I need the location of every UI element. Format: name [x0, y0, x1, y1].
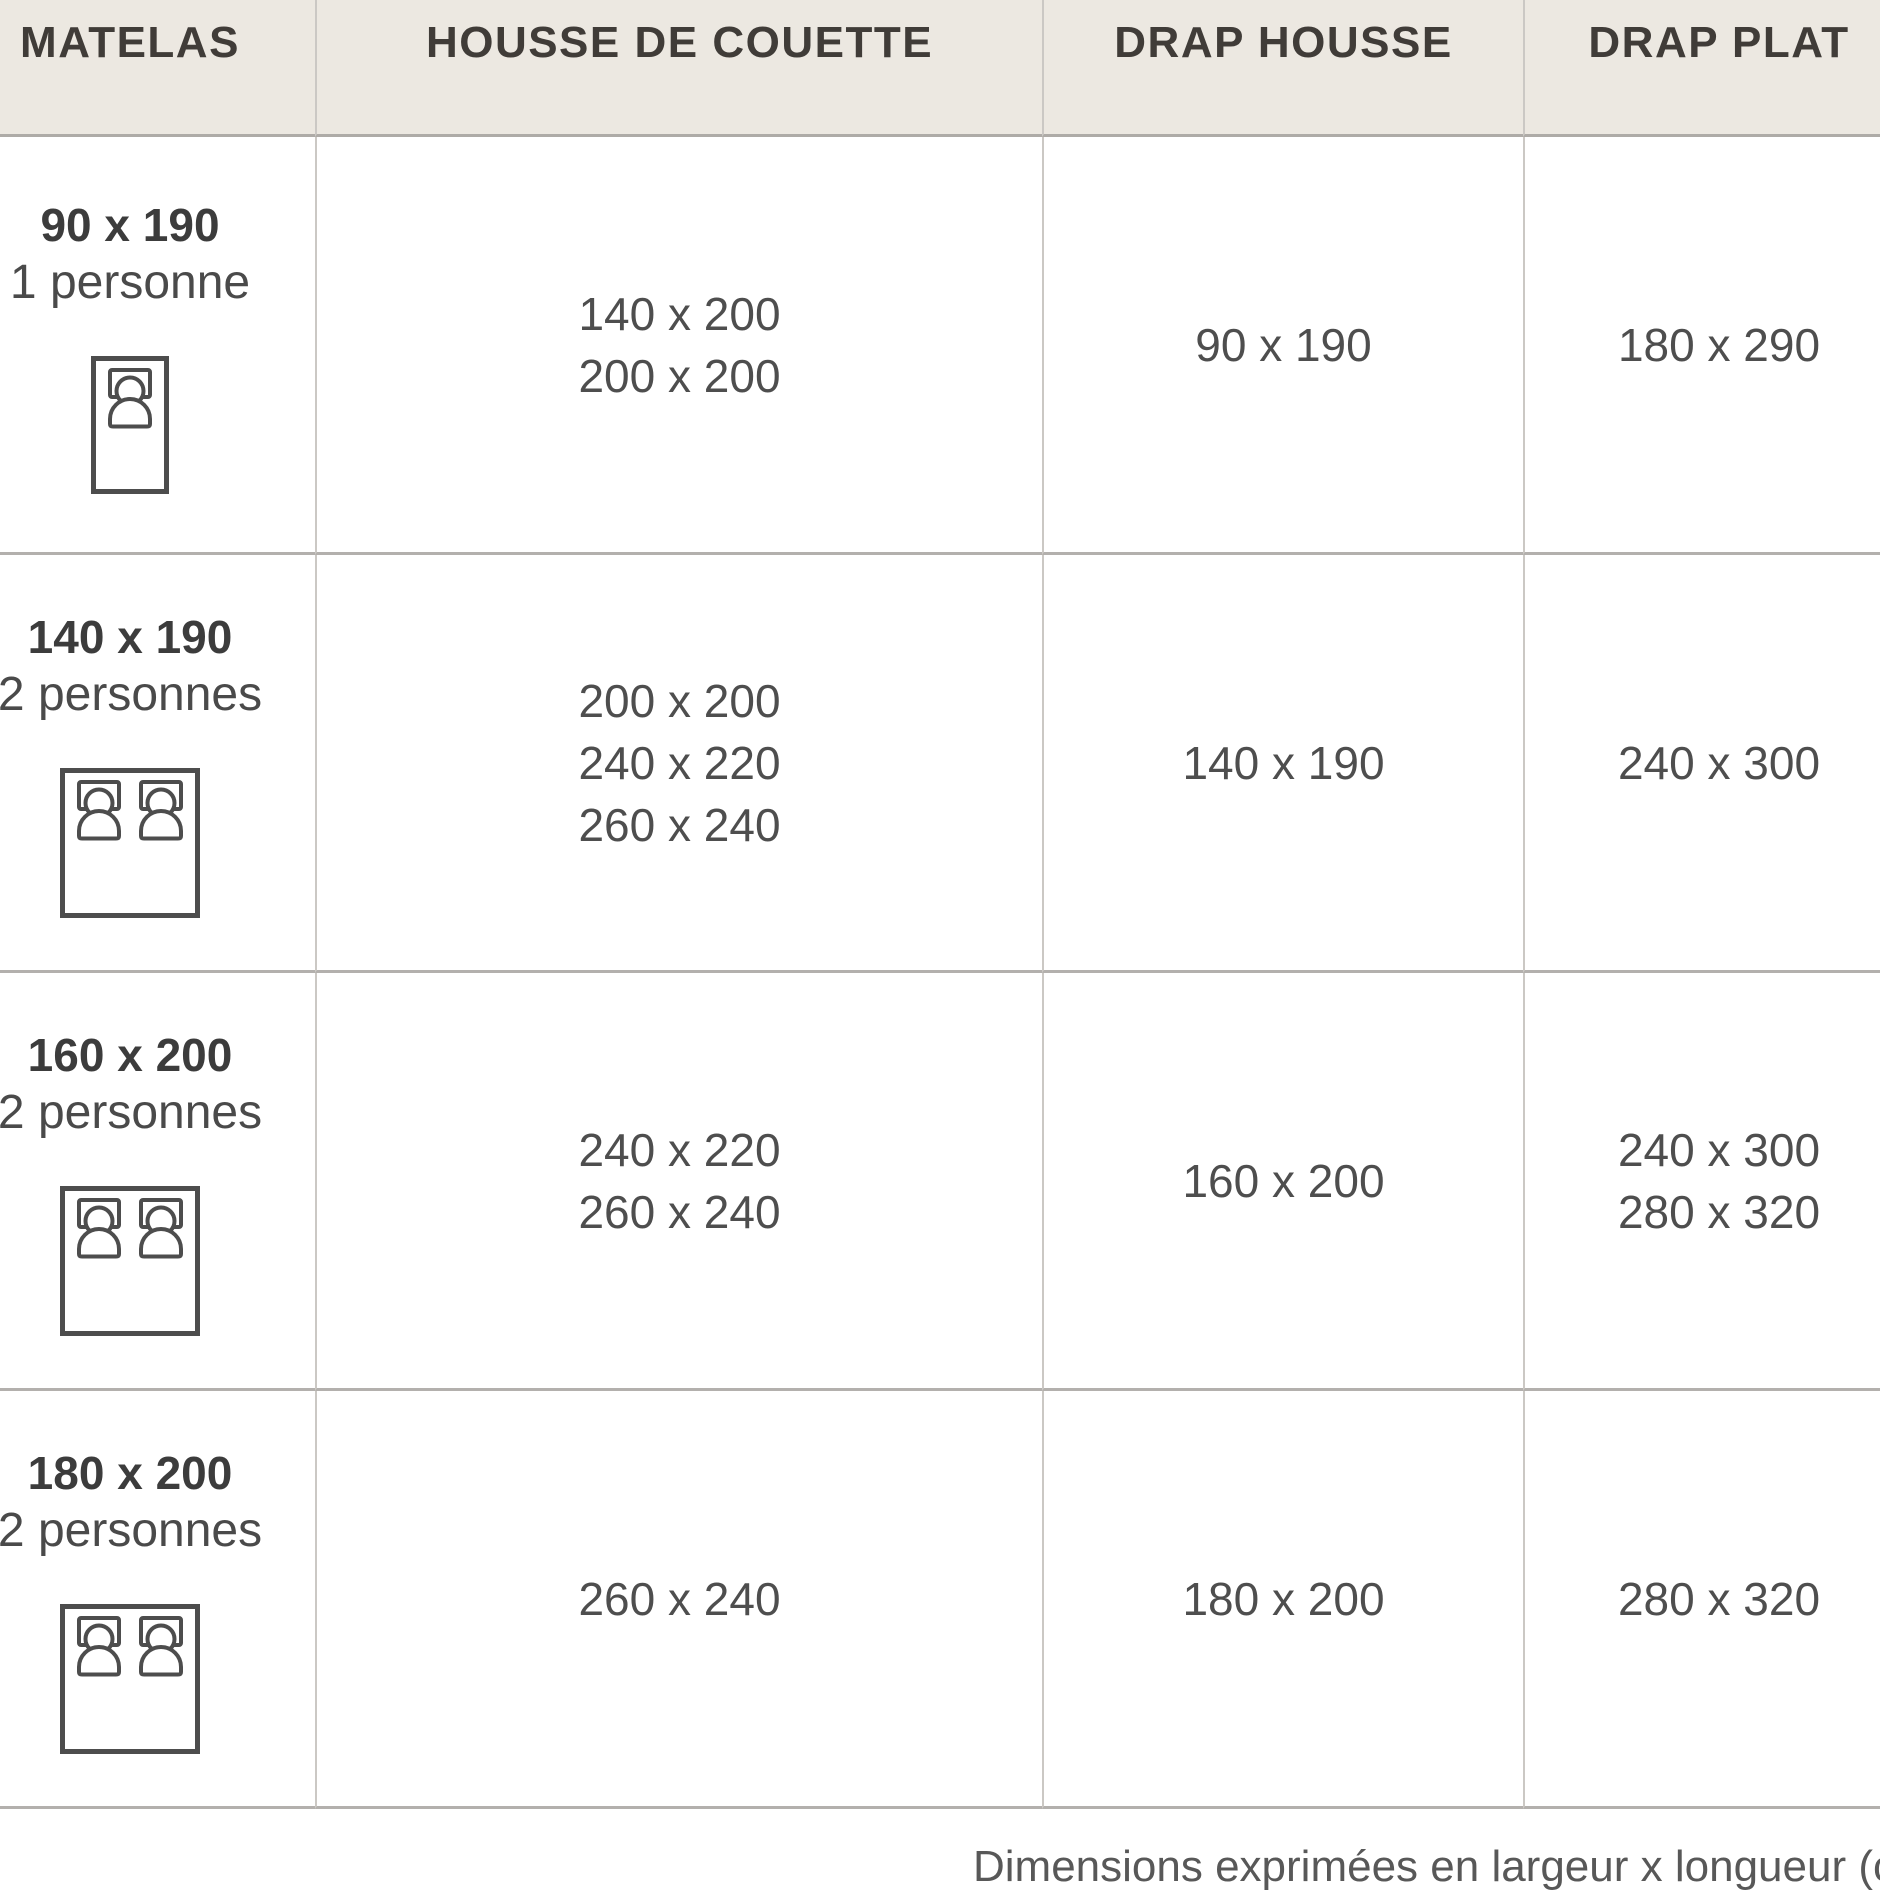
cell-drap-housse: 180 x 200 [1042, 1391, 1523, 1809]
size-value: 260 x 240 [578, 794, 780, 856]
double-bed-icon [60, 1604, 200, 1754]
cell-drap-housse: 160 x 200 [1042, 973, 1523, 1391]
mattress-capacity: 1 personne [10, 254, 250, 312]
size-value: 280 x 320 [1618, 1568, 1820, 1630]
size-value: 240 x 220 [578, 1119, 780, 1181]
bed-linen-size-table: MATELAS HOUSSE DE COUETTE DRAP HOUSSE DR… [0, 0, 1880, 1809]
size-value: 240 x 220 [578, 732, 780, 794]
size-value: 200 x 200 [578, 345, 780, 407]
size-value: 90 x 190 [1195, 314, 1371, 376]
size-value: 240 x 300 [1618, 732, 1820, 794]
mattress-size: 180 x 200 [28, 1444, 233, 1502]
cell-drap-plat: 180 x 290 [1523, 137, 1880, 555]
cell-drap-plat: 240 x 300 [1523, 555, 1880, 973]
size-value: 180 x 200 [1182, 1568, 1384, 1630]
cell-matelas-180x200: 180 x 200 2 personnes [0, 1391, 315, 1809]
cell-housse-de-couette: 260 x 240 [315, 1391, 1042, 1809]
size-value: 180 x 290 [1618, 314, 1820, 376]
cell-matelas-140x190: 140 x 190 2 personnes [0, 555, 315, 973]
cell-drap-plat: 240 x 300 280 x 320 [1523, 973, 1880, 1391]
size-value: 260 x 240 [578, 1181, 780, 1243]
cell-housse-de-couette: 200 x 200 240 x 220 260 x 240 [315, 555, 1042, 973]
cell-drap-plat: 280 x 320 [1523, 1391, 1880, 1809]
cell-housse-de-couette: 240 x 220 260 x 240 [315, 973, 1042, 1391]
mattress-size: 140 x 190 [28, 608, 233, 666]
mattress-size: 160 x 200 [28, 1026, 233, 1084]
size-value: 280 x 320 [1618, 1181, 1820, 1243]
size-value: 140 x 200 [578, 283, 780, 345]
double-bed-icon [60, 1186, 200, 1336]
cell-matelas-160x200: 160 x 200 2 personnes [0, 973, 315, 1391]
double-bed-icon [60, 768, 200, 918]
mattress-size: 90 x 190 [40, 196, 219, 254]
size-value: 200 x 200 [578, 670, 780, 732]
size-value: 160 x 200 [1182, 1150, 1384, 1212]
single-bed-icon [91, 356, 169, 494]
cell-housse-de-couette: 140 x 200 200 x 200 [315, 137, 1042, 555]
mattress-capacity: 2 personnes [0, 1084, 262, 1142]
mattress-capacity: 2 personnes [0, 666, 262, 724]
cell-drap-housse: 140 x 190 [1042, 555, 1523, 973]
column-header-housse-de-couette: HOUSSE DE COUETTE [315, 0, 1042, 137]
size-value: 140 x 190 [1182, 732, 1384, 794]
cell-matelas-90x190: 90 x 190 1 personne [0, 137, 315, 555]
column-header-drap-plat: DRAP PLAT [1523, 0, 1880, 137]
cell-drap-housse: 90 x 190 [1042, 137, 1523, 555]
dimensions-footnote: Dimensions exprimées en largeur x longue… [973, 1842, 1880, 1892]
size-value: 260 x 240 [578, 1568, 780, 1630]
size-value: 240 x 300 [1618, 1119, 1820, 1181]
column-header-drap-housse: DRAP HOUSSE [1042, 0, 1523, 137]
column-header-matelas: MATELAS [0, 0, 315, 137]
mattress-capacity: 2 personnes [0, 1502, 262, 1560]
